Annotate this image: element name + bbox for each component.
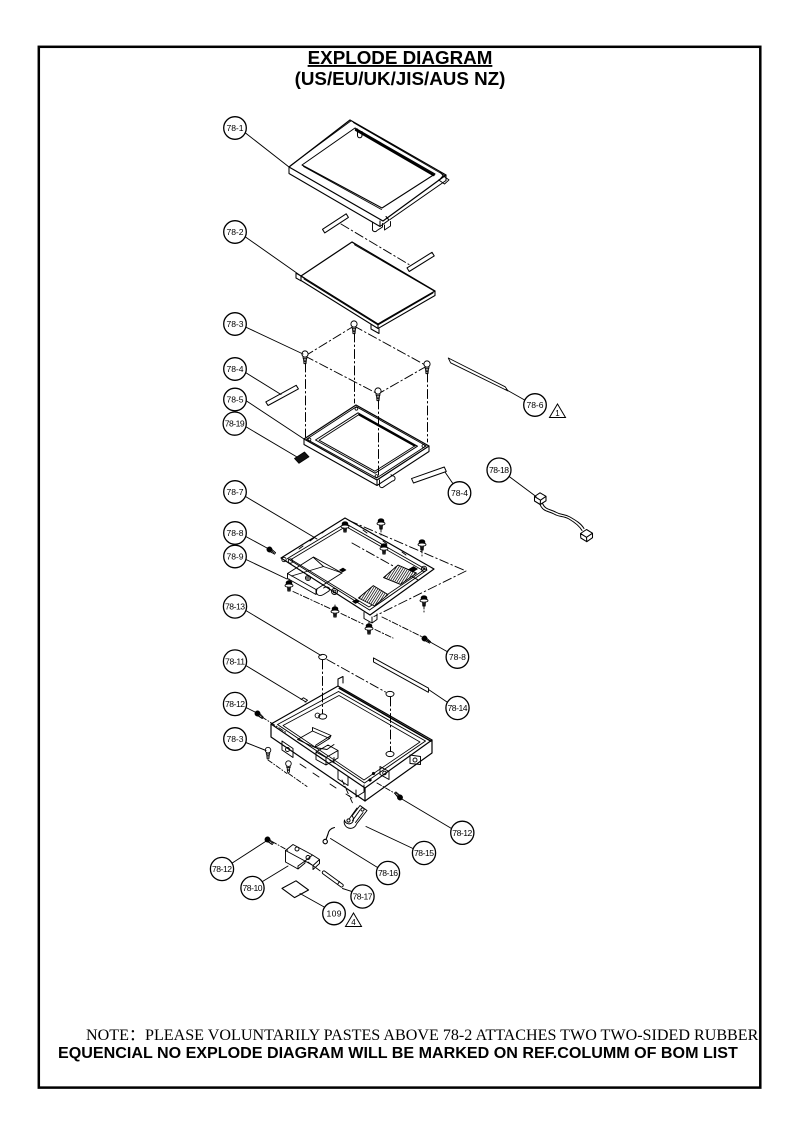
svg-text:78-4: 78-4	[227, 364, 244, 374]
svg-text:78-9: 78-9	[227, 552, 244, 562]
svg-text:78-15: 78-15	[414, 848, 434, 858]
svg-text:78-18: 78-18	[489, 465, 509, 475]
svg-text:4: 4	[351, 918, 356, 927]
svg-text:78-12: 78-12	[225, 699, 245, 709]
svg-text:78-10: 78-10	[243, 883, 263, 893]
svg-text:78-14: 78-14	[448, 703, 468, 713]
svg-text:78-16: 78-16	[378, 868, 398, 878]
svg-text:78-3: 78-3	[227, 734, 244, 744]
svg-text:NOTE：PLEASE VOLUNTARILY PASTES: NOTE：PLEASE VOLUNTARILY PASTES ABOVE 78-…	[86, 1027, 759, 1044]
svg-text:EQUENCIAL NO EXPLODE DIAGRAM W: EQUENCIAL NO EXPLODE DIAGRAM WILL BE MAR…	[58, 1044, 738, 1062]
svg-text:78-11: 78-11	[225, 657, 245, 667]
svg-text:EXPLODE DIAGRAM: EXPLODE DIAGRAM	[308, 47, 493, 68]
svg-text:78-7: 78-7	[227, 487, 244, 497]
svg-text:109: 109	[327, 909, 342, 919]
svg-text:78-2: 78-2	[227, 227, 244, 237]
svg-text:1: 1	[555, 409, 560, 418]
svg-text:78-19: 78-19	[225, 419, 245, 429]
svg-text:78-8: 78-8	[449, 652, 466, 662]
svg-text:78-5: 78-5	[227, 395, 244, 405]
svg-text:78-4: 78-4	[451, 488, 468, 498]
svg-text:78-6: 78-6	[527, 400, 544, 410]
svg-text:78-12: 78-12	[212, 864, 232, 874]
svg-text:78-1: 78-1	[227, 123, 244, 133]
svg-text:78-12: 78-12	[452, 828, 472, 838]
svg-text:78-13: 78-13	[225, 602, 245, 612]
svg-text:78-3: 78-3	[227, 319, 244, 329]
svg-text:(US/EU/UK/JIS/AUS NZ): (US/EU/UK/JIS/AUS NZ)	[295, 68, 506, 89]
svg-text:78-8: 78-8	[227, 528, 244, 538]
svg-text:78-17: 78-17	[353, 892, 373, 902]
